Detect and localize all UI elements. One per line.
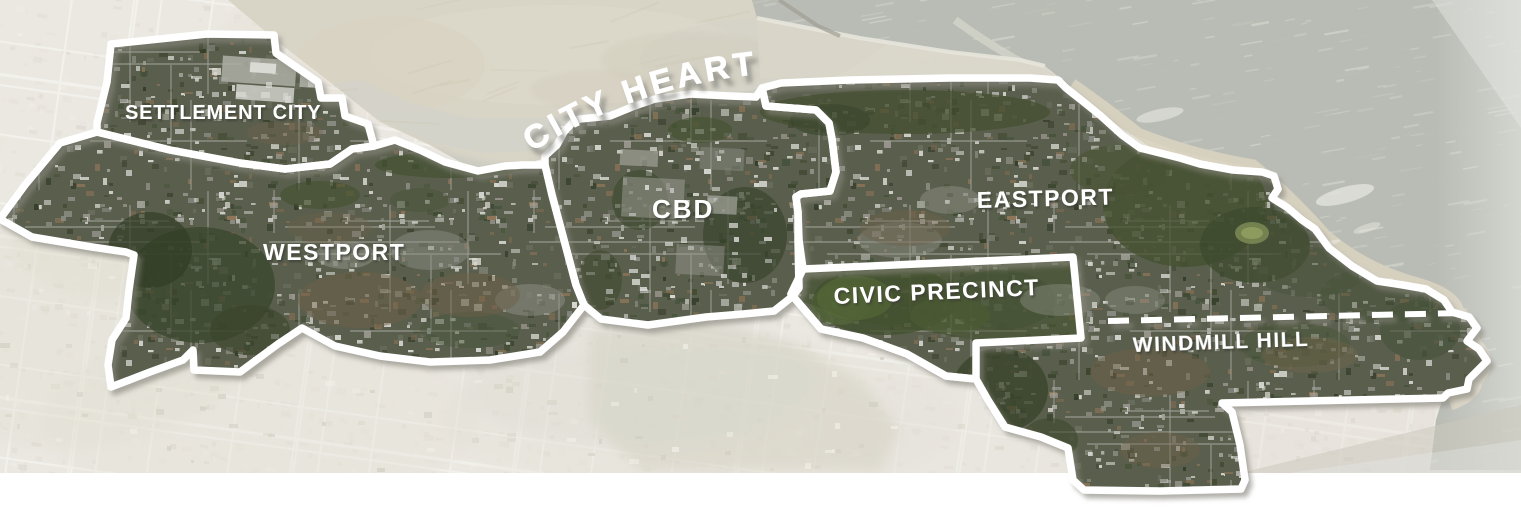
svg-text:WESTPORT: WESTPORT: [263, 239, 405, 265]
svg-text:EASTPORT: EASTPORT: [976, 183, 1114, 213]
svg-text:SETTLEMENT CITY: SETTLEMENT CITY: [125, 102, 321, 124]
svg-text:CBD: CBD: [652, 194, 714, 224]
